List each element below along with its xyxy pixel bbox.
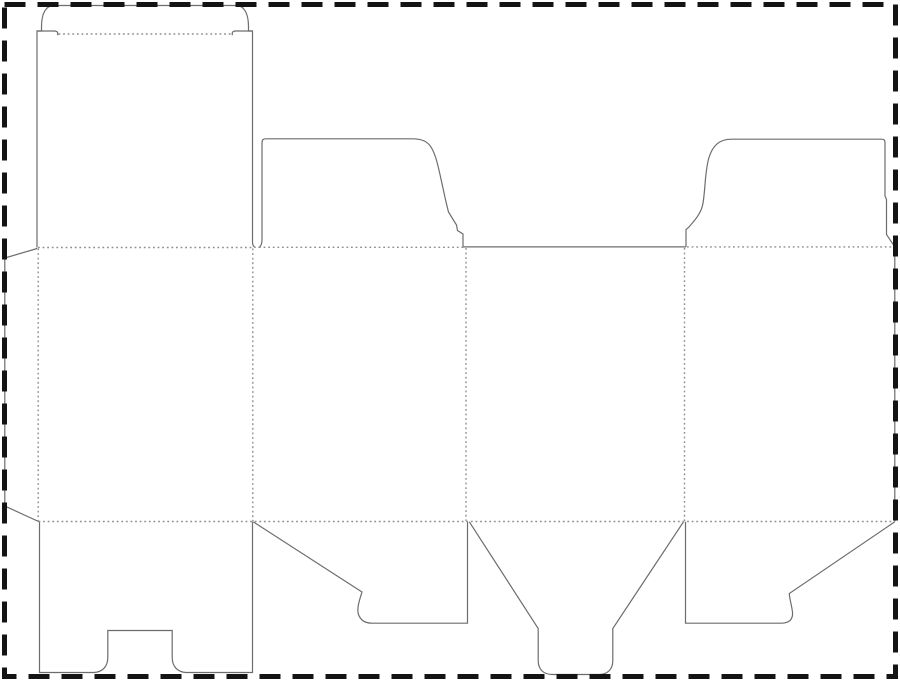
top-dust-flap-left-outline (259, 139, 464, 248)
tuck-right-hook (232, 31, 252, 35)
bottom-dust-flap-left-outline (253, 522, 467, 623)
sheet-border (5, 5, 896, 677)
cut-lines-group (5, 6, 895, 675)
dieline-canvas (0, 0, 900, 681)
top-dust-flap-right-outline (686, 139, 895, 247)
glue-flap-outline (5, 249, 39, 522)
bottom-tongue-flap-outline (469, 522, 683, 675)
bottom-dust-flap-right-outline (686, 522, 895, 623)
lid-tuck-outline (37, 6, 256, 248)
dieline-sheet (0, 0, 900, 681)
fold-lines-group (38, 34, 895, 522)
sheet-border-group (5, 5, 896, 677)
bottom-lock-flap-outline (40, 522, 253, 673)
tuck-left-hook (37, 31, 58, 35)
